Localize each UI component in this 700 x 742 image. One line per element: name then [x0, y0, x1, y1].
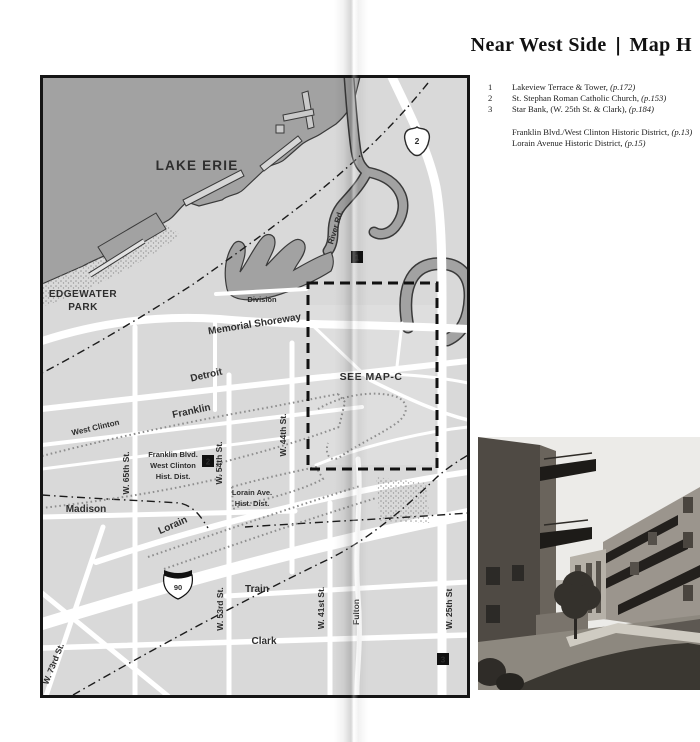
- i90-number: 90: [174, 583, 182, 592]
- edgewater-park-label-1: EDGEWATER: [49, 289, 117, 300]
- lakeview-terrace-photo: [478, 437, 700, 690]
- legend-item-number: 3: [488, 104, 512, 115]
- train-label: Train: [245, 584, 269, 595]
- svg-text:2: 2: [206, 458, 211, 467]
- w44th-label: W. 44th St.: [278, 414, 288, 457]
- legend-item-number: 2: [488, 93, 512, 104]
- legend-item: 1 Lakeview Terrace & Tower, (p.172): [488, 82, 693, 93]
- page-title: Near West Side|Map H: [430, 34, 692, 57]
- legend-item: 3 Star Bank, (W. 25th St. & Clark), (p.1…: [488, 104, 693, 115]
- lake-erie-label: LAKE ERIE: [156, 158, 239, 173]
- w53rd-label: W. 53rd St.: [215, 587, 225, 630]
- page-title-left: Near West Side: [471, 34, 607, 56]
- site-marker-1: 1: [351, 251, 363, 263]
- svg-text:1: 1: [355, 254, 360, 263]
- franklin-district-label-3: Hist. Dist.: [156, 472, 191, 481]
- legend: 1 Lakeview Terrace & Tower, (p.172) 2 St…: [488, 82, 693, 149]
- franklin-district-label-1: Franklin Blvd.: [148, 450, 198, 459]
- photo-scene: [478, 437, 700, 690]
- w65th-label: W. 65th St.: [121, 452, 131, 495]
- division-label: Division: [247, 295, 277, 304]
- w54th-label: W. 54th St.: [214, 442, 224, 485]
- street-map: 2 90 1 2 3 LAKE ERIE EDGEWATER: [40, 75, 470, 698]
- legend-district-item: Lorain Avenue Historic District, (p.15): [488, 138, 693, 149]
- legend-item: 2 St. Stephan Roman Catholic Church, (p.…: [488, 93, 693, 104]
- book-page: Near West Side|Map H 1 Lakeview Terrace …: [0, 0, 700, 742]
- legend-district-item: Franklin Blvd./West Clinton Historic Dis…: [488, 127, 693, 138]
- legend-district-text: Lorain Avenue Historic District, (p.15): [512, 138, 693, 149]
- page-title-right: Map H: [629, 34, 692, 56]
- legend-item-text: Star Bank, (W. 25th St. & Clark), (p.184…: [512, 104, 693, 115]
- madison-label: Madison: [66, 504, 107, 515]
- site-marker-3: 3: [437, 653, 449, 665]
- fulton-label: Fulton: [351, 599, 361, 625]
- clark-label: Clark: [251, 636, 276, 647]
- legend-gap: [488, 115, 693, 127]
- legend-district-text: Franklin Blvd./West Clinton Historic Dis…: [512, 127, 693, 138]
- site-marker-2: 2: [202, 455, 214, 467]
- edgewater-park-label-2: PARK: [68, 302, 98, 313]
- lorain-district-label-2: Hist. Dist.: [235, 499, 270, 508]
- title-separator: |: [615, 34, 622, 57]
- franklin-district-label-2: West Clinton: [150, 461, 196, 470]
- legend-item-text: Lakeview Terrace & Tower, (p.172): [512, 82, 693, 93]
- route-2-number: 2: [415, 136, 420, 146]
- legend-item-number: 1: [488, 82, 512, 93]
- lorain-district-label-1: Lorain Ave.: [232, 488, 272, 497]
- see-map-c-label: SEE MAP-C: [340, 371, 403, 383]
- legend-item-text: St. Stephan Roman Catholic Church, (p.15…: [512, 93, 693, 104]
- svg-text:3: 3: [441, 656, 446, 665]
- w41st-label: W. 41st St.: [316, 587, 326, 630]
- w25th-label: W. 25th St: [444, 589, 454, 630]
